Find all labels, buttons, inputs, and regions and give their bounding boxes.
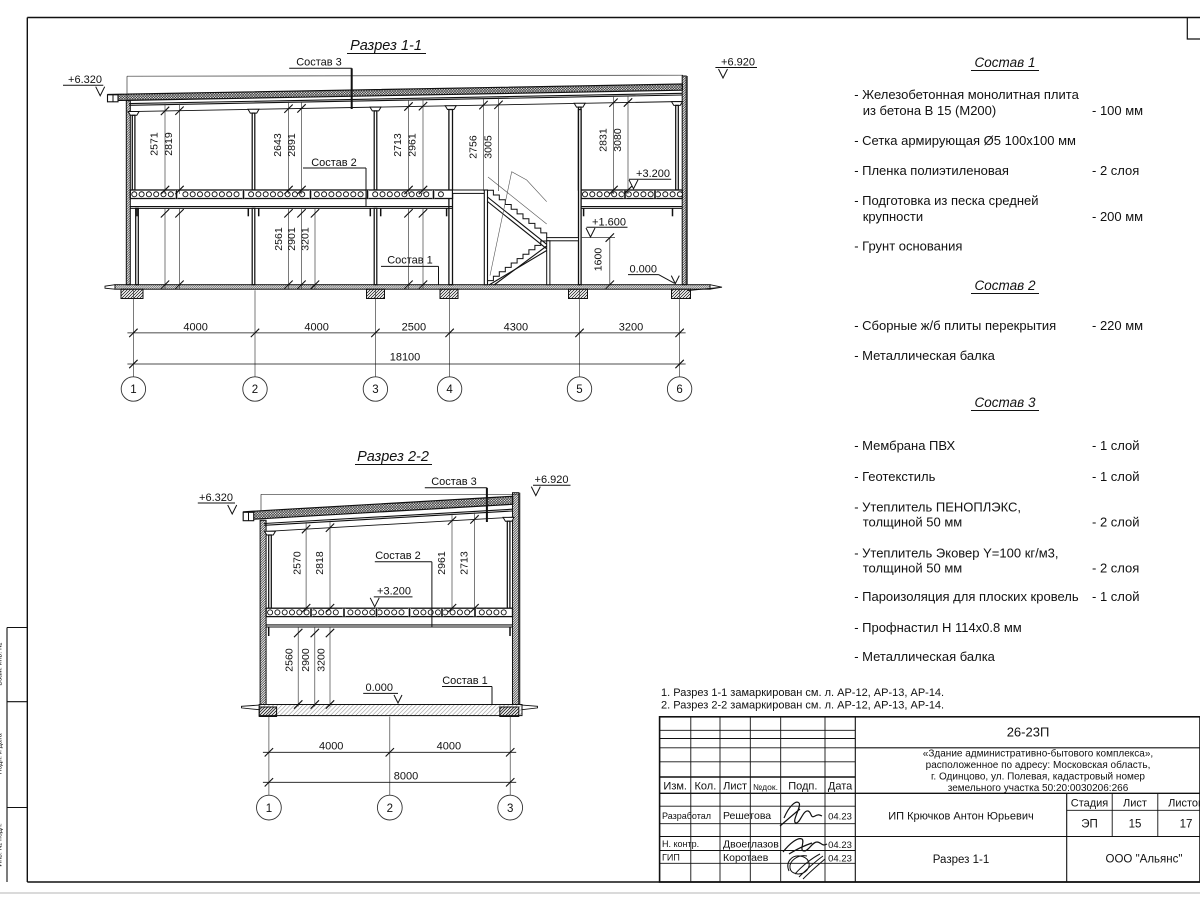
svg-text:Лист: Лист	[1123, 798, 1147, 810]
svg-text:3200: 3200	[316, 648, 328, 672]
svg-text:2. Разрез 2-2 замаркирован см.: 2. Разрез 2-2 замаркирован см. л. АР-12,…	[661, 700, 944, 712]
svg-text:- Геотекстиль: - Геотекстиль	[854, 469, 935, 484]
svg-text:Разработал: Разработал	[662, 811, 711, 821]
svg-text:Взам. инв. №: Взам. инв. №	[0, 642, 4, 685]
svg-text:Состав 2: Состав 2	[975, 278, 1036, 293]
svg-text:- Профнастил Н 114х0.8 мм: - Профнастил Н 114х0.8 мм	[854, 620, 1022, 635]
svg-text:5: 5	[576, 384, 582, 396]
svg-text:- 220 мм: - 220 мм	[1092, 318, 1143, 333]
svg-text:4000: 4000	[304, 321, 328, 333]
svg-text:Подп.: Подп.	[788, 781, 817, 793]
svg-text:+6.320: +6.320	[68, 74, 102, 86]
svg-text:04.23: 04.23	[828, 840, 852, 851]
svg-text:земельного участка 50:20:00302: земельного участка 50:20:0030206:266	[948, 783, 1129, 794]
svg-text:Кол.: Кол.	[695, 781, 717, 793]
svg-text:- Пароизоляция для плоских кро: - Пароизоляция для плоских кровель	[854, 589, 1079, 604]
svg-text:Листов: Листов	[1168, 798, 1200, 810]
svg-text:- Металлическая балка: - Металлическая балка	[854, 348, 995, 363]
svg-text:+3.200: +3.200	[377, 586, 411, 598]
svg-text:Разрез 2-2: Разрез 2-2	[357, 449, 429, 465]
svg-text:Решетова: Решетова	[723, 810, 771, 822]
svg-text:- 200 мм: - 200 мм	[1092, 209, 1143, 224]
svg-text:2900: 2900	[300, 648, 312, 672]
svg-text:1: 1	[130, 384, 136, 396]
svg-text:Подп. и дата: Подп. и дата	[0, 733, 4, 774]
svg-text:2571: 2571	[149, 132, 161, 156]
svg-text:- Грунт основания: - Грунт основания	[854, 239, 962, 254]
svg-text:ГИП: ГИП	[662, 853, 680, 863]
svg-text:0.000: 0.000	[365, 682, 393, 694]
svg-text:г. Одинцово, ул. Полевая, када: г. Одинцово, ул. Полевая, кадастровый но…	[931, 772, 1145, 783]
svg-text:Инв. № подл.: Инв. № подл.	[0, 823, 4, 867]
svg-text:3080: 3080	[612, 128, 624, 152]
svg-text:3: 3	[507, 803, 513, 815]
svg-text:6: 6	[676, 384, 682, 396]
svg-text:Изм.: Изм.	[663, 781, 687, 793]
svg-text:04.23: 04.23	[828, 854, 852, 865]
svg-text:- Сборные ж/б плиты перекрытия: - Сборные ж/б плиты перекрытия	[854, 318, 1056, 333]
svg-text:«Здание административно-бытово: «Здание административно-бытового комплек…	[923, 748, 1153, 760]
svg-text:Коротаев: Коротаев	[723, 852, 769, 864]
svg-text:- 1 слой: - 1 слой	[1092, 438, 1140, 453]
svg-text:2561: 2561	[273, 227, 285, 251]
svg-text:Состав 3: Состав 3	[431, 476, 477, 488]
svg-text:3201: 3201	[300, 227, 312, 251]
svg-text:0.000: 0.000	[629, 264, 657, 276]
svg-text:2500: 2500	[402, 321, 426, 333]
svg-text:толщиной 50 мм: толщиной 50 мм	[863, 561, 963, 576]
svg-text:- Железобетонная монолитная п: - Железобетонная монолитная плита	[854, 87, 1079, 102]
svg-text:Состав 3: Состав 3	[296, 57, 342, 69]
svg-text:ЭП: ЭП	[1081, 819, 1098, 831]
svg-text:- 1 слой: - 1 слой	[1092, 469, 1140, 484]
svg-text:Состав 1: Состав 1	[975, 55, 1036, 70]
svg-text:+3.200: +3.200	[636, 168, 670, 180]
svg-text:1. Разрез 1-1 замаркирован см.: 1. Разрез 1-1 замаркирован см. л. АР-12,…	[661, 687, 944, 699]
svg-text:- Металлическая балка: - Металлическая балка	[854, 649, 995, 664]
svg-text:3005: 3005	[483, 135, 495, 159]
svg-text:Лист: Лист	[723, 781, 747, 793]
svg-text:2901: 2901	[286, 227, 298, 251]
svg-text:- Утеплитель Эковер Y=100 кг/м: - Утеплитель Эковер Y=100 кг/м3,	[854, 546, 1058, 561]
svg-text:2961: 2961	[436, 551, 448, 575]
svg-text:- Подготовка из песка средней: - Подготовка из песка средней	[854, 193, 1038, 208]
svg-text:17: 17	[1180, 819, 1193, 831]
svg-text:15: 15	[1129, 819, 1142, 831]
svg-text:04.23: 04.23	[828, 812, 852, 823]
svg-text:из бетона В 15 (М200): из бетона В 15 (М200)	[863, 103, 997, 118]
svg-text:Состав 2: Состав 2	[375, 550, 421, 562]
svg-text:- 100 мм: - 100 мм	[1092, 103, 1143, 118]
svg-text:2831: 2831	[598, 128, 610, 152]
svg-text:2756: 2756	[468, 135, 480, 159]
svg-text:18100: 18100	[390, 351, 421, 363]
svg-text:Состав 3: Состав 3	[975, 395, 1036, 410]
svg-text:2819: 2819	[163, 132, 175, 156]
svg-text:8000: 8000	[394, 770, 418, 782]
svg-text:2713: 2713	[459, 551, 471, 575]
svg-text:2713: 2713	[392, 133, 404, 157]
svg-text:4000: 4000	[319, 741, 343, 753]
svg-text:Состав 1: Состав 1	[387, 255, 433, 267]
svg-text:2: 2	[252, 384, 258, 396]
svg-text:4: 4	[446, 384, 453, 396]
svg-text:- Утеплитель ПЕНОПЛЭКС,: - Утеплитель ПЕНОПЛЭКС,	[854, 500, 1021, 515]
svg-text:2: 2	[387, 803, 393, 815]
svg-text:Стадия: Стадия	[1071, 798, 1109, 810]
svg-text:Двоеглазов: Двоеглазов	[723, 839, 779, 851]
svg-text:ООО "Альянс": ООО "Альянс"	[1106, 854, 1183, 866]
svg-text:- 2 слоя: - 2 слоя	[1092, 561, 1139, 576]
svg-text:Разрез 1-1: Разрез 1-1	[933, 854, 989, 866]
svg-text:2570: 2570	[291, 551, 303, 575]
svg-text:Состав 2: Состав 2	[311, 157, 357, 169]
svg-text:26-23П: 26-23П	[1007, 725, 1050, 740]
svg-text:3200: 3200	[619, 321, 643, 333]
svg-text:2891: 2891	[286, 133, 298, 157]
svg-text:3: 3	[372, 384, 378, 396]
svg-text:крупности: крупности	[863, 209, 923, 224]
svg-text:+6.920: +6.920	[721, 57, 755, 69]
svg-text:- 2 слоя: - 2 слоя	[1092, 163, 1139, 178]
svg-text:- 2 слой: - 2 слой	[1092, 515, 1140, 530]
svg-text:2961: 2961	[407, 133, 419, 157]
svg-text:Состав 1: Состав 1	[442, 675, 488, 687]
svg-text:№док.: №док.	[753, 782, 778, 792]
svg-text:+1.600: +1.600	[592, 217, 626, 229]
svg-text:Дата: Дата	[828, 781, 853, 793]
svg-text:2560: 2560	[284, 648, 296, 672]
svg-text:- Пленка полиэтиленовая: - Пленка полиэтиленовая	[854, 163, 1009, 178]
svg-text:1: 1	[266, 803, 272, 815]
svg-text:Разрез 1-1: Разрез 1-1	[350, 38, 422, 54]
svg-text:+6.320: +6.320	[199, 492, 233, 504]
svg-text:Н. контр.: Н. контр.	[662, 839, 699, 849]
svg-text:4000: 4000	[437, 741, 461, 753]
svg-text:4000: 4000	[183, 321, 207, 333]
svg-text:2643: 2643	[272, 133, 284, 157]
svg-text:- Мембрана ПВХ: - Мембрана ПВХ	[854, 438, 955, 453]
svg-text:4300: 4300	[504, 321, 528, 333]
svg-text:- Сетка армирующая Ø5 100х100: - Сетка армирующая Ø5 100х100 мм	[854, 133, 1076, 148]
svg-text:ИП Крючков Антон Юрьевич: ИП Крючков Антон Юрьевич	[888, 811, 1033, 823]
svg-text:- 1 слой: - 1 слой	[1092, 589, 1140, 604]
svg-text:1600: 1600	[593, 248, 605, 272]
svg-text:толщиной 50 мм: толщиной 50 мм	[863, 515, 963, 530]
svg-text:2818: 2818	[314, 551, 326, 575]
svg-text:+6.920: +6.920	[535, 474, 569, 486]
svg-text:расположенное по адресу: Моско: расположенное по адресу: Московская обла…	[926, 759, 1151, 771]
